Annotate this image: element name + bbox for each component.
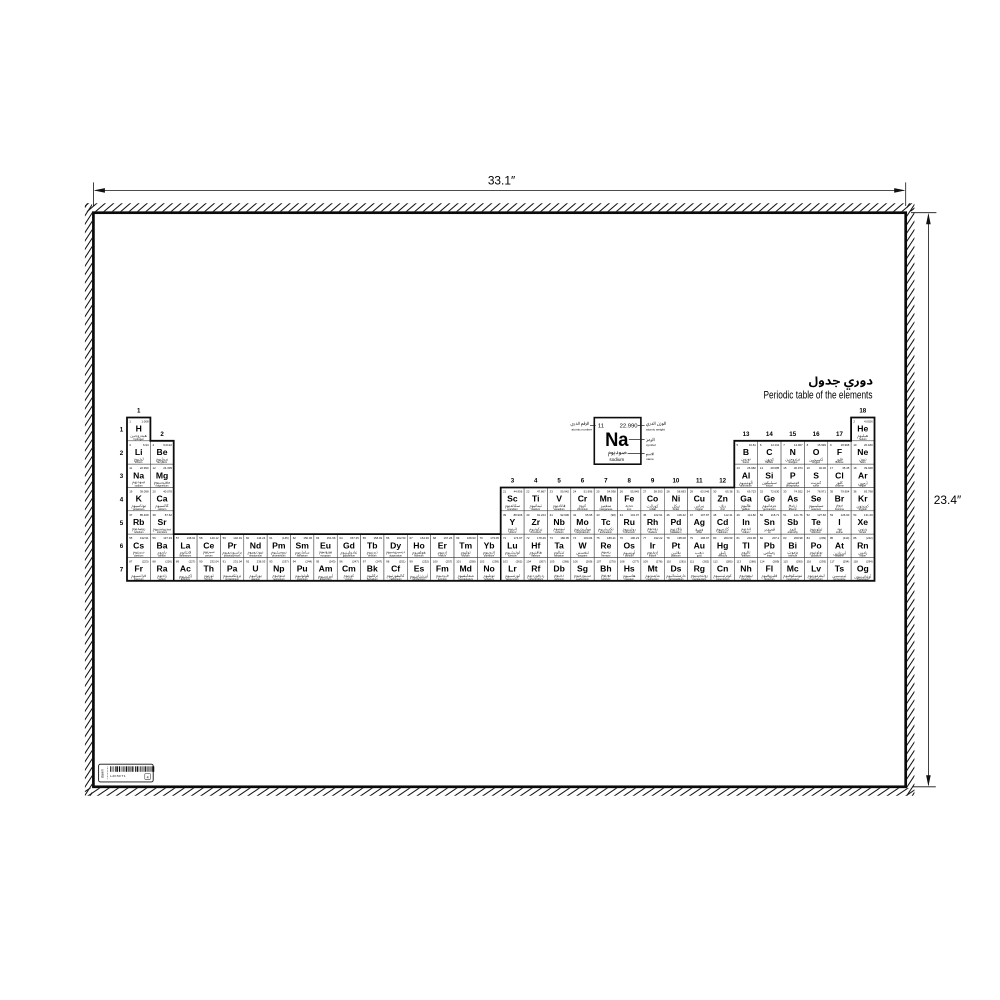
svg-text:F: F xyxy=(837,447,842,457)
svg-text:Te: Te xyxy=(811,517,821,527)
svg-text:9: 9 xyxy=(651,478,655,485)
svg-text:Periodic table of the elements: Periodic table of the elements xyxy=(764,389,873,401)
svg-text:H: H xyxy=(136,424,142,434)
svg-text:tungsten: tungsten xyxy=(578,554,588,557)
svg-text:iron: iron xyxy=(627,508,632,511)
svg-text:Si: Si xyxy=(765,470,773,480)
svg-text:Hf: Hf xyxy=(531,540,540,550)
svg-text:ytterbium: ytterbium xyxy=(484,554,494,557)
svg-text:90: 90 xyxy=(199,559,203,563)
svg-text:Ra: Ra xyxy=(157,564,168,574)
svg-text:73: 73 xyxy=(550,536,554,540)
svg-text:Ho: Ho xyxy=(413,540,424,550)
svg-text:Li: Li xyxy=(135,447,143,457)
svg-text:selenium: selenium xyxy=(811,508,821,511)
svg-text:Br: Br xyxy=(835,494,845,504)
svg-text:krypton: krypton xyxy=(859,508,868,511)
svg-text:91: 91 xyxy=(223,559,227,563)
svg-text:Fl: Fl xyxy=(766,564,774,574)
svg-text:Sm: Sm xyxy=(296,540,310,550)
svg-text:titanium: titanium xyxy=(531,508,540,511)
svg-text:30: 30 xyxy=(713,489,717,493)
svg-text:(98): (98) xyxy=(611,513,616,517)
svg-text:Mg: Mg xyxy=(156,470,168,480)
svg-text:Lv: Lv xyxy=(811,564,821,574)
svg-text:126.90: 126.90 xyxy=(841,513,850,517)
svg-text:Mo: Mo xyxy=(576,517,588,527)
svg-text:23: 23 xyxy=(550,489,554,493)
svg-text:Cl: Cl xyxy=(835,470,844,480)
svg-text:Er: Er xyxy=(438,540,448,550)
svg-text:2: 2 xyxy=(120,450,124,457)
svg-text:rhenium: rhenium xyxy=(601,554,610,557)
svg-text:11: 11 xyxy=(129,466,132,470)
svg-text:Xe: Xe xyxy=(858,517,869,527)
svg-text:Pu: Pu xyxy=(297,564,308,574)
svg-text:78: 78 xyxy=(666,536,670,540)
svg-text:tantalum: tantalum xyxy=(554,554,564,557)
svg-text:83: 83 xyxy=(783,536,787,540)
svg-text:13: 13 xyxy=(737,466,741,470)
svg-text:Kr: Kr xyxy=(858,494,868,504)
svg-text:Tb: Tb xyxy=(367,540,378,550)
svg-text:Yb: Yb xyxy=(484,540,495,550)
svg-text:Ds: Ds xyxy=(670,564,681,574)
svg-text:59: 59 xyxy=(223,536,227,540)
svg-text:helium: helium xyxy=(859,438,866,441)
svg-text:gold: gold xyxy=(697,554,702,557)
svg-text:24: 24 xyxy=(573,489,577,493)
svg-text:5: 5 xyxy=(557,478,561,485)
svg-text:Mc: Mc xyxy=(787,564,799,574)
svg-text:phosphorus: phosphorus xyxy=(786,484,800,487)
svg-text:Cr: Cr xyxy=(578,494,588,504)
svg-text:Th: Th xyxy=(204,564,215,574)
svg-text:Es: Es xyxy=(414,564,425,574)
svg-text:7: 7 xyxy=(604,478,608,485)
svg-text:strontium: strontium xyxy=(157,531,167,534)
svg-text:potassium: potassium xyxy=(133,508,144,511)
svg-text:98: 98 xyxy=(386,559,390,563)
svg-text:Na: Na xyxy=(133,470,144,480)
svg-text:Fm: Fm xyxy=(436,564,449,574)
svg-text:Fr: Fr xyxy=(134,564,143,574)
svg-text:Ca: Ca xyxy=(157,494,168,504)
svg-text:72: 72 xyxy=(526,536,530,540)
svg-text:35: 35 xyxy=(830,489,834,493)
svg-text:hafnium: hafnium xyxy=(531,554,540,557)
svg-text:lanthanum: lanthanum xyxy=(180,554,192,557)
svg-text:Co: Co xyxy=(647,494,658,504)
svg-text:23.4″: 23.4″ xyxy=(934,493,961,507)
svg-text:atomic weight: atomic weight xyxy=(646,428,665,432)
svg-text:(289): (289) xyxy=(773,559,780,563)
svg-text:Nb: Nb xyxy=(553,517,564,527)
svg-text:hydrogen: hydrogen xyxy=(133,438,144,441)
svg-text:15: 15 xyxy=(789,431,796,438)
svg-text:1: 1 xyxy=(137,408,141,415)
svg-text:S: S xyxy=(813,470,819,480)
svg-text:B: B xyxy=(743,447,749,457)
svg-text:40: 40 xyxy=(526,513,530,517)
svg-text:10.81: 10.81 xyxy=(749,443,757,447)
svg-text:oxygen: oxygen xyxy=(812,461,821,464)
svg-text:38: 38 xyxy=(153,513,157,517)
svg-text:54: 54 xyxy=(853,513,857,517)
svg-text:silver: silver xyxy=(696,531,702,534)
svg-text:3: 3 xyxy=(120,473,124,480)
svg-text:Sc: Sc xyxy=(507,494,518,504)
svg-text:Cu: Cu xyxy=(694,494,705,504)
svg-text:erbium: erbium xyxy=(439,554,447,557)
svg-text:polonium: polonium xyxy=(811,554,821,557)
svg-text:palladium: palladium xyxy=(671,531,682,534)
svg-text:32.06: 32.06 xyxy=(819,466,827,470)
svg-text:niobium: niobium xyxy=(555,531,564,534)
svg-text:antimony: antimony xyxy=(788,531,799,534)
svg-text:cobalt: cobalt xyxy=(649,508,656,511)
svg-text:No: No xyxy=(483,564,494,574)
svg-text:Os: Os xyxy=(623,540,635,550)
svg-text:5: 5 xyxy=(120,520,124,527)
svg-text:Tl: Tl xyxy=(742,540,750,550)
svg-text:Nd: Nd xyxy=(250,540,261,550)
svg-text:8: 8 xyxy=(627,478,631,485)
svg-text:Cd: Cd xyxy=(717,517,728,527)
svg-text:16: 16 xyxy=(813,431,820,438)
svg-text:Bh: Bh xyxy=(600,564,611,574)
svg-text:18: 18 xyxy=(853,466,857,470)
svg-text:Ar: Ar xyxy=(858,470,868,480)
svg-text:53: 53 xyxy=(830,513,834,517)
svg-text:Pd: Pd xyxy=(670,517,681,527)
svg-text:Pa: Pa xyxy=(227,564,238,574)
svg-text:Tc: Tc xyxy=(601,517,611,527)
svg-text:tellurium: tellurium xyxy=(811,531,820,534)
svg-text:57: 57 xyxy=(176,536,180,540)
svg-text:C: C xyxy=(766,447,772,457)
svg-text:Ir: Ir xyxy=(650,540,656,550)
svg-text:Cn: Cn xyxy=(717,564,728,574)
svg-text:Se: Se xyxy=(811,494,822,504)
svg-text:W: W xyxy=(578,540,587,550)
svg-text:17: 17 xyxy=(836,431,843,438)
svg-text:36: 36 xyxy=(853,489,857,493)
svg-text:lithium: lithium xyxy=(135,461,142,464)
svg-text:boron: boron xyxy=(743,461,750,464)
svg-text:87: 87 xyxy=(129,559,133,563)
svg-text:La: La xyxy=(180,540,190,550)
svg-text:Ag: Ag xyxy=(694,517,705,527)
svg-text:26: 26 xyxy=(620,489,624,493)
svg-text:18: 18 xyxy=(859,408,866,415)
svg-text:cadmium: cadmium xyxy=(718,531,728,534)
svg-text:bismuth: bismuth xyxy=(788,554,797,557)
svg-text:astatine: astatine xyxy=(835,554,844,557)
svg-text:7: 7 xyxy=(120,567,124,574)
svg-text:sodium: sodium xyxy=(609,457,624,462)
svg-text:Sn: Sn xyxy=(764,517,775,527)
svg-text:Ac: Ac xyxy=(180,564,191,574)
svg-text:O: O xyxy=(813,447,820,457)
svg-text:arsenic: arsenic xyxy=(789,508,798,511)
svg-text:copper: copper xyxy=(695,508,703,511)
svg-text:ruthenium: ruthenium xyxy=(624,531,635,534)
svg-text:In: In xyxy=(742,517,750,527)
svg-text:N: N xyxy=(790,447,796,457)
svg-text:Rh: Rh xyxy=(647,517,658,527)
svg-text:15: 15 xyxy=(783,466,787,470)
svg-text:Db: Db xyxy=(553,564,564,574)
svg-text:114: 114 xyxy=(760,559,765,563)
svg-text:Np: Np xyxy=(273,564,284,574)
svg-text:Rb: Rb xyxy=(133,517,144,527)
svg-text:caesium: caesium xyxy=(134,554,143,557)
svg-text:Rg: Rg xyxy=(694,564,705,574)
svg-text:Hs: Hs xyxy=(624,564,635,574)
svg-text:Po: Po xyxy=(811,540,822,550)
svg-text:Gd: Gd xyxy=(343,540,355,550)
svg-text:Rn: Rn xyxy=(857,540,868,550)
svg-text:74: 74 xyxy=(573,536,577,540)
svg-text:barium: barium xyxy=(158,554,166,557)
svg-text:1.008: 1.008 xyxy=(141,420,149,424)
svg-text:4: 4 xyxy=(120,497,124,504)
svg-text:gadolinium: gadolinium xyxy=(343,554,355,557)
svg-text:Fe: Fe xyxy=(624,494,634,504)
svg-text:65: 65 xyxy=(363,536,367,540)
svg-text:Be: Be xyxy=(157,447,168,457)
svg-text:praseodymium: praseodymium xyxy=(224,554,240,557)
svg-text:16: 16 xyxy=(807,466,811,470)
svg-text:Bk: Bk xyxy=(367,564,378,574)
svg-text:Zr: Zr xyxy=(531,517,540,527)
svg-text:Md: Md xyxy=(459,564,471,574)
svg-text:molybdenum: molybdenum xyxy=(575,531,589,534)
svg-text:Eu: Eu xyxy=(320,540,331,550)
svg-text:Ba: Ba xyxy=(157,540,168,550)
svg-text:name: name xyxy=(646,457,654,461)
svg-text:cerium: cerium xyxy=(205,554,213,557)
svg-text:Al: Al xyxy=(742,470,751,480)
svg-text:nickel: nickel xyxy=(673,508,680,511)
svg-text:promethium: promethium xyxy=(272,554,285,557)
svg-text:Lu: Lu xyxy=(507,540,518,550)
svg-text:14: 14 xyxy=(766,431,773,438)
svg-text:osmium: osmium xyxy=(625,554,634,557)
svg-text:K: K xyxy=(136,494,143,504)
svg-text:aluminium: aluminium xyxy=(740,484,751,487)
svg-text:chromium: chromium xyxy=(577,508,588,511)
svg-text:carbon: carbon xyxy=(766,461,774,464)
svg-text:zirconium: zirconium xyxy=(530,531,541,534)
svg-text:99: 99 xyxy=(410,559,414,563)
svg-text:52: 52 xyxy=(807,513,811,517)
svg-text:L2K5FT1: L2K5FT1 xyxy=(110,774,126,778)
svg-text:39: 39 xyxy=(503,513,507,517)
svg-text:77: 77 xyxy=(643,536,647,540)
svg-text:Og: Og xyxy=(857,564,869,574)
svg-text:dysprosium: dysprosium xyxy=(389,554,402,557)
svg-text:6: 6 xyxy=(120,543,124,550)
svg-text:iodine: iodine xyxy=(836,531,843,534)
svg-text:Ta: Ta xyxy=(554,540,564,550)
svg-text:13: 13 xyxy=(743,431,750,438)
svg-text:sodium: sodium xyxy=(135,484,143,487)
svg-text:Hg: Hg xyxy=(717,540,728,550)
svg-text:6: 6 xyxy=(581,478,585,485)
svg-text:6.94: 6.94 xyxy=(143,443,149,447)
svg-text:Re: Re xyxy=(600,540,611,550)
svg-text:Sg: Sg xyxy=(577,564,588,574)
svg-text:europium: europium xyxy=(320,554,330,557)
svg-text:At: At xyxy=(835,540,844,550)
svg-text:Cm: Cm xyxy=(342,564,356,574)
svg-text:terbium: terbium xyxy=(368,554,376,557)
svg-text:2: 2 xyxy=(160,431,164,438)
svg-text:Rf: Rf xyxy=(531,564,540,574)
svg-text:thallium: thallium xyxy=(742,554,751,557)
svg-text:Bi: Bi xyxy=(788,540,797,550)
svg-text:platinum: platinum xyxy=(671,554,680,557)
svg-text:lead: lead xyxy=(767,554,772,557)
svg-text:chlorine: chlorine xyxy=(835,484,844,487)
svg-text:neodymium: neodymium xyxy=(249,554,262,557)
svg-text:lutetium: lutetium xyxy=(508,554,517,557)
svg-text:Pb: Pb xyxy=(764,540,775,550)
svg-text:17: 17 xyxy=(830,466,834,470)
svg-text:calcium: calcium xyxy=(158,508,166,511)
svg-text:11: 11 xyxy=(696,478,703,485)
svg-text:germanium: germanium xyxy=(763,508,776,511)
svg-text:technetium: technetium xyxy=(600,531,612,534)
svg-text:He: He xyxy=(857,424,868,434)
svg-text:beryllium: beryllium xyxy=(157,461,167,464)
svg-text:Au: Au xyxy=(694,540,705,550)
svg-text:Ts: Ts xyxy=(835,564,845,574)
svg-text:Am: Am xyxy=(319,564,333,574)
svg-text:thulium: thulium xyxy=(462,554,470,557)
svg-text:85: 85 xyxy=(830,536,834,540)
svg-text:nitrogen: nitrogen xyxy=(788,461,798,464)
svg-text:Pt: Pt xyxy=(672,540,681,550)
svg-text:silicon: silicon xyxy=(766,484,774,487)
svg-text:mercury: mercury xyxy=(718,554,728,557)
svg-text:4: 4 xyxy=(534,478,538,485)
svg-text:yttrium: yttrium xyxy=(509,531,517,534)
svg-text:I: I xyxy=(838,517,840,527)
svg-text:magnesium: magnesium xyxy=(156,484,169,487)
svg-text:22: 22 xyxy=(526,489,530,493)
svg-text:19: 19 xyxy=(129,489,133,493)
svg-text:Lr: Lr xyxy=(508,564,517,574)
svg-text:dawri: dawri xyxy=(101,769,105,778)
svg-text:rhodium: rhodium xyxy=(648,531,657,534)
svg-text:vanadium: vanadium xyxy=(554,508,565,511)
svg-text:fluorine: fluorine xyxy=(835,461,844,464)
svg-text:Ge: Ge xyxy=(764,494,776,504)
svg-text:indium: indium xyxy=(742,531,749,534)
svg-text:1: 1 xyxy=(120,427,124,434)
svg-text:neon: neon xyxy=(860,461,866,464)
svg-text:Cf: Cf xyxy=(391,564,400,574)
svg-text:V: V xyxy=(556,494,562,504)
svg-text:10: 10 xyxy=(672,478,679,485)
svg-text:Tm: Tm xyxy=(459,540,472,550)
svg-text:Mn: Mn xyxy=(600,494,612,504)
svg-text:Nh: Nh xyxy=(740,564,751,574)
svg-text:As: As xyxy=(787,494,798,504)
svg-text:radon: radon xyxy=(860,554,867,557)
svg-text:71: 71 xyxy=(503,536,507,540)
svg-text:3: 3 xyxy=(511,478,515,485)
svg-text:68: 68 xyxy=(433,536,437,540)
svg-text:Sr: Sr xyxy=(158,517,168,527)
svg-text:Ne: Ne xyxy=(857,447,868,457)
svg-text:rubidium: rubidium xyxy=(134,531,144,534)
svg-text:samarium: samarium xyxy=(297,554,308,557)
svg-text:92: 92 xyxy=(246,559,250,563)
svg-text:34: 34 xyxy=(807,489,811,493)
svg-text:Ti: Ti xyxy=(532,494,539,504)
svg-text:81: 81 xyxy=(737,536,741,540)
svg-text:33.1″: 33.1″ xyxy=(488,174,515,188)
svg-text:Mt: Mt xyxy=(648,564,658,574)
svg-text:Pr: Pr xyxy=(228,540,238,550)
svg-text:14: 14 xyxy=(760,466,764,470)
svg-text:12: 12 xyxy=(719,478,726,485)
svg-text:U: U xyxy=(252,564,258,574)
svg-text:Pm: Pm xyxy=(272,540,286,550)
svg-text:Y: Y xyxy=(510,517,516,527)
svg-text:21: 21 xyxy=(503,489,507,493)
svg-text:argon: argon xyxy=(860,484,867,487)
svg-text:P: P xyxy=(790,470,796,480)
svg-text:Ce: Ce xyxy=(203,540,214,550)
svg-text:atomic number: atomic number xyxy=(572,427,592,431)
svg-text:Zn: Zn xyxy=(717,494,728,504)
svg-text:holmium: holmium xyxy=(414,554,423,557)
svg-text:xenon: xenon xyxy=(859,531,866,534)
svg-text:Dy: Dy xyxy=(390,540,401,550)
svg-text:28: 28 xyxy=(666,489,670,493)
svg-text:scandium: scandium xyxy=(507,508,518,511)
svg-text:gallium: gallium xyxy=(742,508,750,511)
svg-text:49: 49 xyxy=(737,513,741,517)
svg-text:Sb: Sb xyxy=(787,517,798,527)
svg-text:manganese: manganese xyxy=(599,508,613,511)
svg-text:Na: Na xyxy=(605,429,629,451)
svg-text:11: 11 xyxy=(598,423,604,429)
svg-text:4: 4 xyxy=(147,775,149,779)
svg-text:sulfur: sulfur xyxy=(813,484,819,487)
svg-text:bromine: bromine xyxy=(835,508,845,511)
svg-text:iridium: iridium xyxy=(649,554,656,557)
svg-text:Ni: Ni xyxy=(672,494,681,504)
svg-text:zinc: zinc xyxy=(720,508,725,511)
svg-text:Ga: Ga xyxy=(740,494,752,504)
svg-text:Ru: Ru xyxy=(623,517,634,527)
svg-text:43: 43 xyxy=(596,513,600,517)
svg-text:symbol: symbol xyxy=(646,443,656,447)
svg-text:Cs: Cs xyxy=(133,540,144,550)
